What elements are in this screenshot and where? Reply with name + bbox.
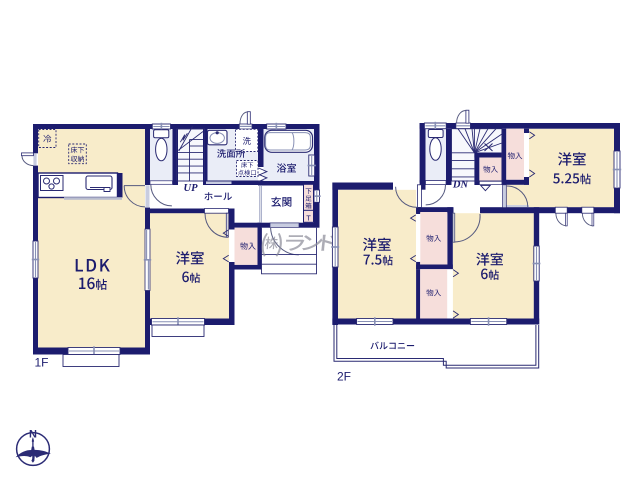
svg-text:DN: DN [452,180,469,191]
svg-text:T: T [306,214,311,223]
svg-text:2F: 2F [337,370,351,384]
svg-text:1F: 1F [35,356,49,370]
svg-text:UP: UP [184,183,199,194]
